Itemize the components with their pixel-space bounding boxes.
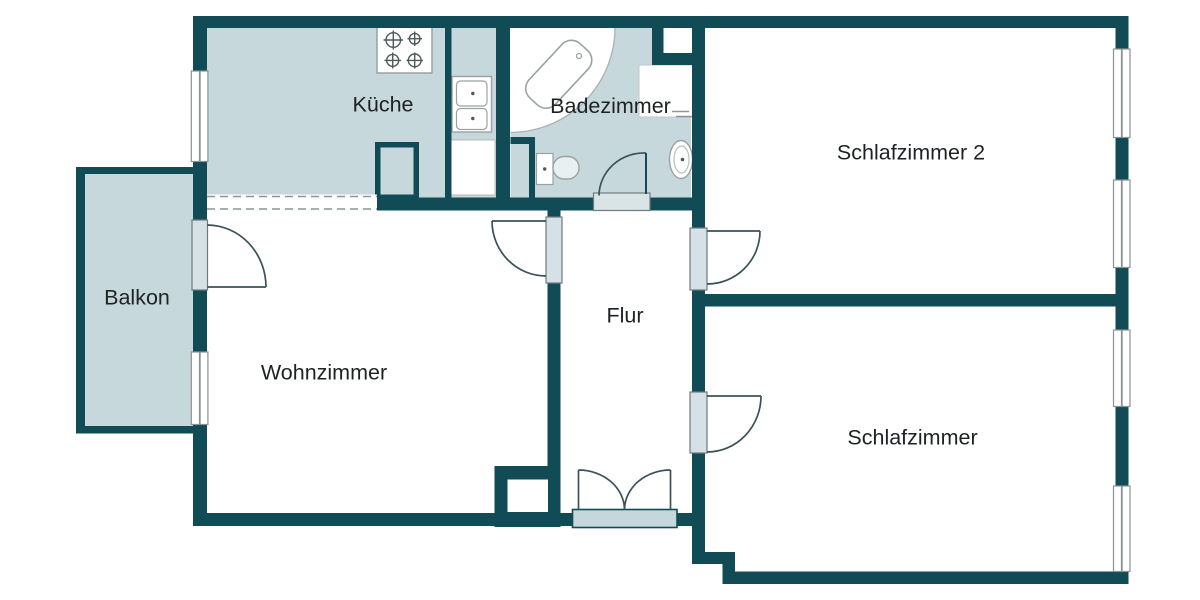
svg-text:Schlafzimmer 2: Schlafzimmer 2 — [837, 141, 985, 165]
svg-text:Schlafzimmer: Schlafzimmer — [847, 426, 977, 450]
svg-text:Flur: Flur — [606, 304, 643, 328]
svg-text:Badezimmer: Badezimmer — [550, 94, 671, 118]
svg-text:Wohnzimmer: Wohnzimmer — [261, 361, 387, 385]
svg-text:Balkon: Balkon — [104, 286, 170, 310]
svg-text:Küche: Küche — [353, 93, 414, 117]
